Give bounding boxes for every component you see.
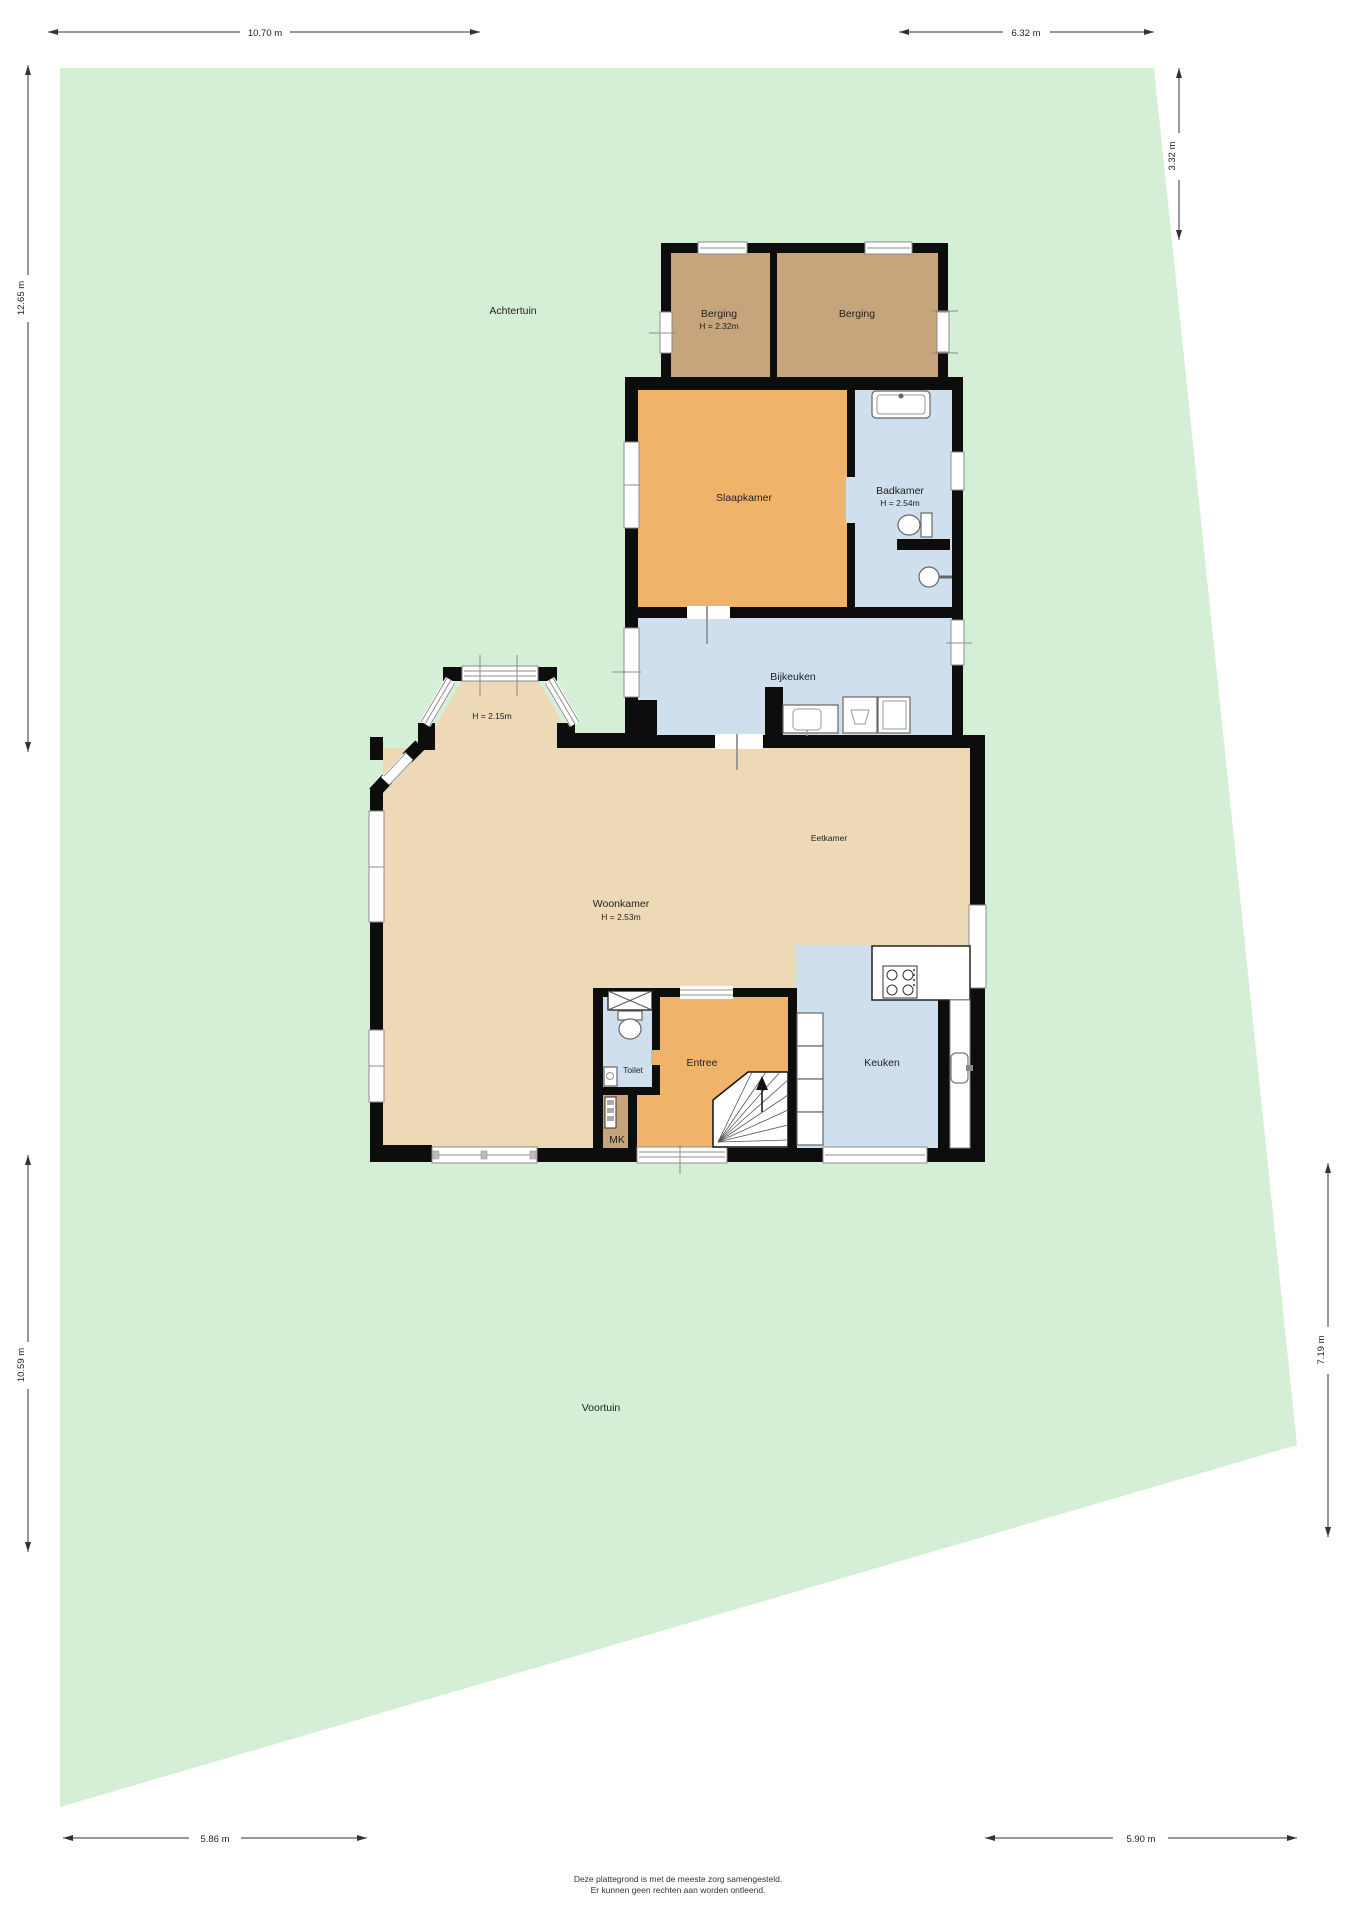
room-entree-floor-strip xyxy=(637,1095,660,1148)
window-berging-right xyxy=(937,312,949,352)
label-entree: Entree xyxy=(687,1057,718,1069)
window-bay-front xyxy=(462,666,538,681)
dim-bottom-right: 5.90 m xyxy=(1126,1834,1155,1845)
dim-top-left: 10.70 m xyxy=(248,28,282,39)
footer-line-2: Er kunnen geen rechten aan worden ontlee… xyxy=(591,1885,766,1895)
dim-left-lower: 10.59 m xyxy=(16,1348,27,1382)
washer-icon xyxy=(843,697,877,733)
cabinet-icon xyxy=(797,1013,823,1046)
wc-bowl-icon xyxy=(619,1019,641,1039)
door-toilet xyxy=(651,1050,661,1065)
label-meterkast: MK xyxy=(609,1134,625,1146)
dim-right-lower: 7.19 m xyxy=(1316,1335,1327,1364)
cabinet-icon xyxy=(797,1046,823,1079)
label-berging-left-height: H = 2.32m xyxy=(699,321,738,331)
bath-faucet-icon xyxy=(899,394,904,399)
cabinet-icon xyxy=(797,1112,823,1145)
label-woonkamer: Woonkamer xyxy=(593,898,650,910)
label-bijkeuken: Bijkeuken xyxy=(770,671,816,683)
label-eetkamer: Eetkamer xyxy=(811,833,848,843)
label-berging-right: Berging xyxy=(839,308,875,320)
door-woonkamer-entree xyxy=(680,986,733,999)
dim-bottom-left: 5.86 m xyxy=(200,1834,229,1845)
label-berging-left: Berging xyxy=(701,308,737,320)
label-badkamer: Badkamer xyxy=(876,485,924,497)
floorplan-canvas: Achtertuin Voortuin Berging H = 2.32m Be… xyxy=(0,0,1358,1920)
window-badkamer-east xyxy=(951,452,964,490)
kitchen-faucet-icon xyxy=(966,1065,973,1071)
door-slaapkamer-bijkeuken xyxy=(687,606,730,619)
window-bijkeuken-west xyxy=(624,628,639,697)
washbasin-icon xyxy=(919,567,939,587)
label-erker-height: H = 2.15m xyxy=(472,711,511,721)
toilet-bowl-icon xyxy=(898,515,920,535)
floorplan-page: Achtertuin Voortuin Berging H = 2.32m Be… xyxy=(0,0,1358,1920)
toilet-sink-icon xyxy=(604,1067,617,1086)
cabinet-icon xyxy=(797,1079,823,1112)
door-slaapkamer-badkamer xyxy=(846,477,856,523)
label-toilet: Toilet xyxy=(623,1065,643,1075)
label-voortuin: Voortuin xyxy=(582,1402,621,1414)
label-achtertuin: Achtertuin xyxy=(489,305,536,317)
toilet-tank-icon xyxy=(921,513,932,537)
label-keuken: Keuken xyxy=(864,1057,900,1069)
dim-left-upper: 12.65 m xyxy=(16,281,27,315)
window-eetkamer-east xyxy=(969,905,986,988)
label-badkamer-height: H = 2.54m xyxy=(880,498,919,508)
footer-disclaimer: Deze plattegrond is met de meeste zorg s… xyxy=(574,1874,782,1895)
footer-line-1: Deze plattegrond is met de meeste zorg s… xyxy=(574,1874,782,1884)
dim-top-right: 6.32 m xyxy=(1011,28,1040,39)
door-bijkeuken-eetkamer xyxy=(715,734,763,749)
label-woonkamer-height: H = 2.53m xyxy=(601,912,640,922)
dim-right-upper: 3.32 m xyxy=(1167,141,1178,170)
label-slaapkamer: Slaapkamer xyxy=(716,492,773,504)
front-door xyxy=(637,1147,727,1163)
kitchen-sink-icon xyxy=(951,1053,968,1083)
